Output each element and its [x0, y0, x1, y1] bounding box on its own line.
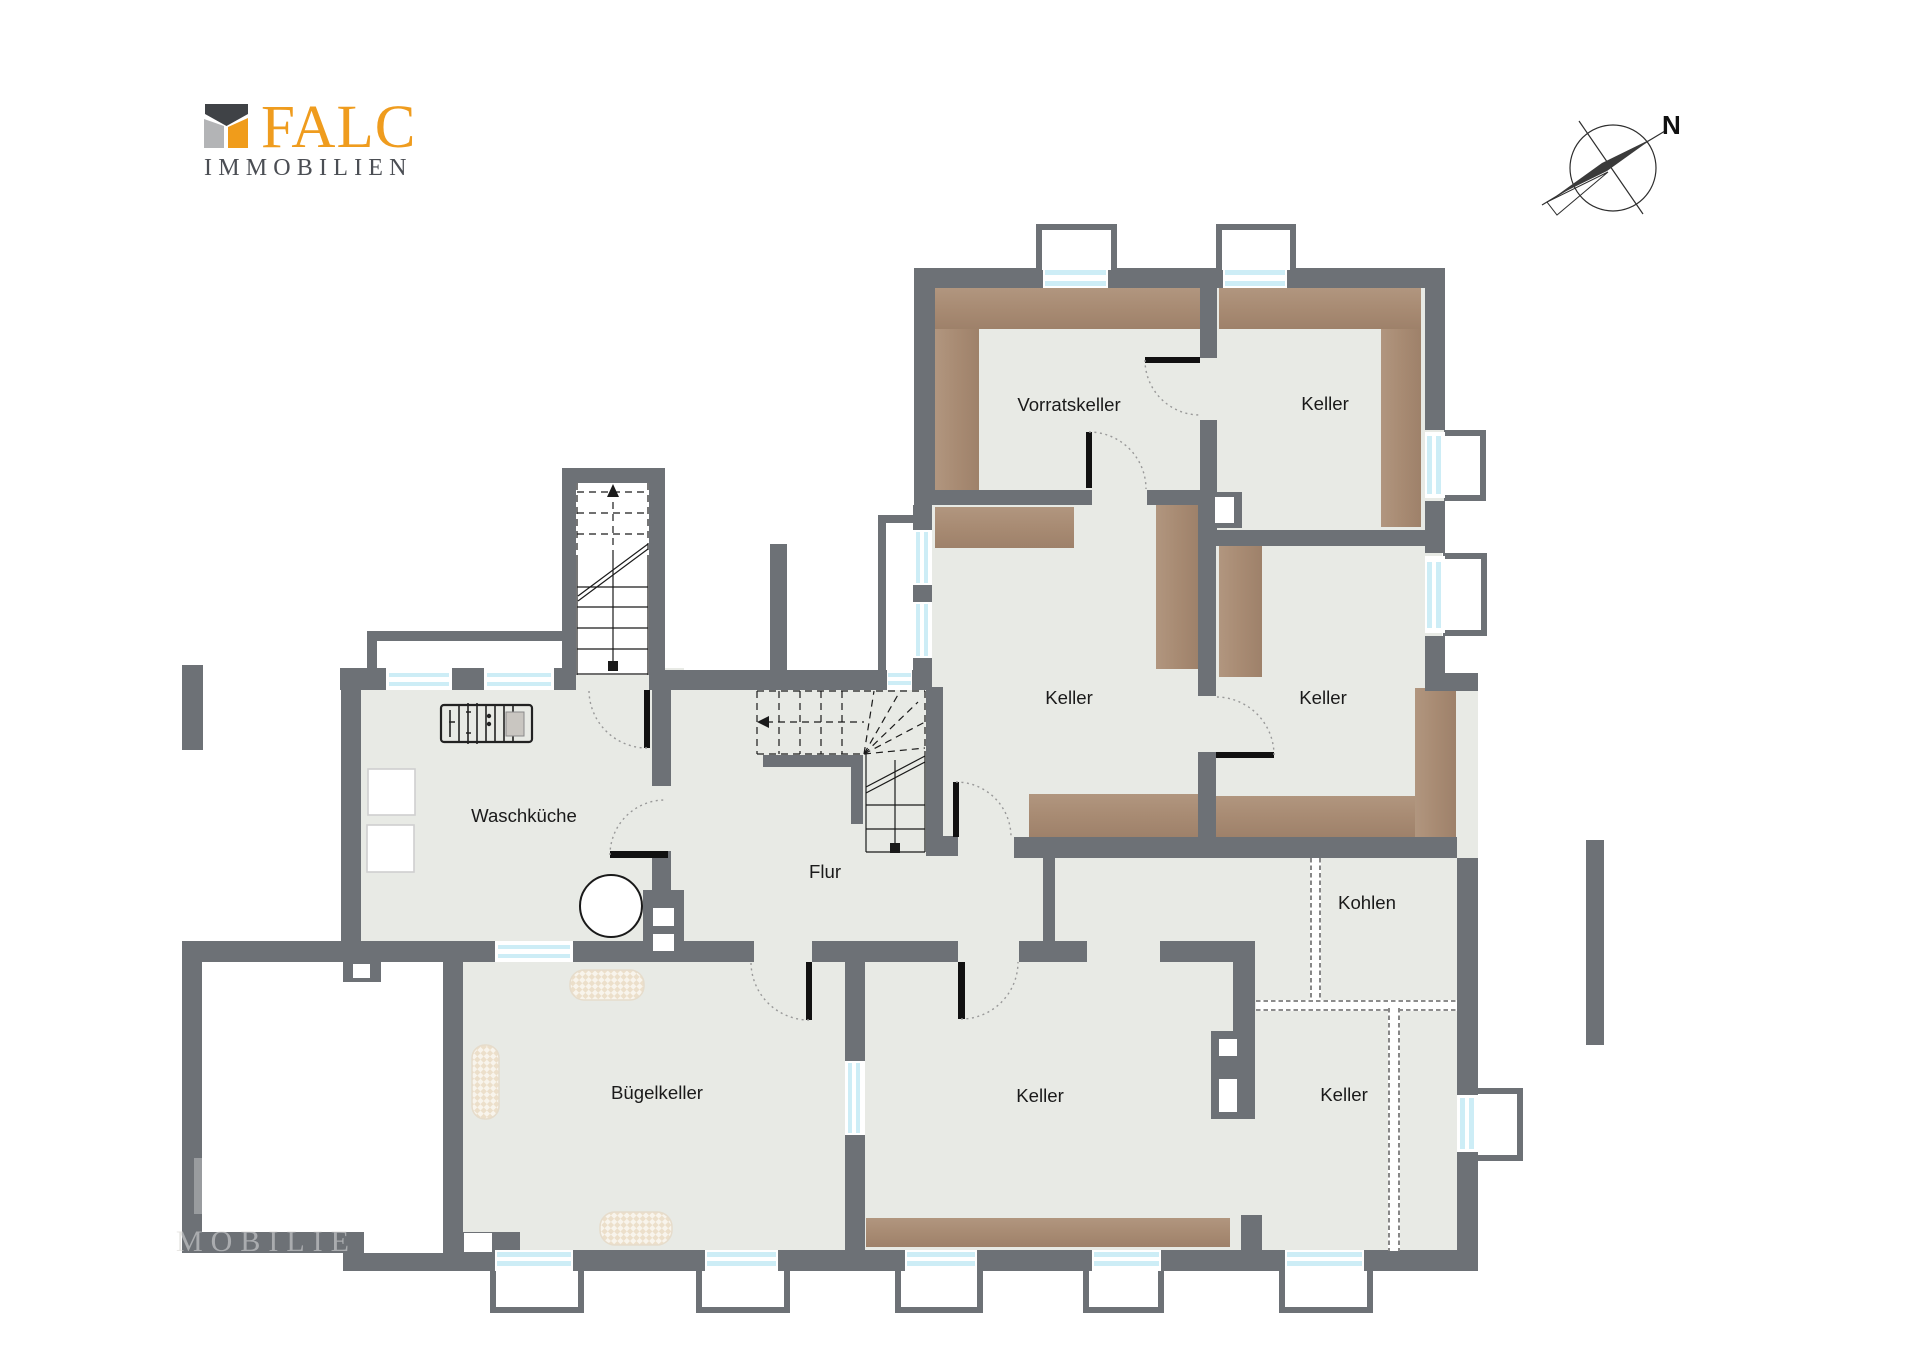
- svg-text:FALC: FALC: [261, 94, 416, 161]
- svg-text:Waschküche: Waschküche: [471, 805, 577, 826]
- svg-text:Keller: Keller: [1299, 687, 1347, 708]
- svg-text:Keller: Keller: [1045, 687, 1093, 708]
- svg-text:MOBILIE: MOBILIE: [176, 1225, 357, 1258]
- svg-text:Keller: Keller: [1016, 1085, 1064, 1106]
- svg-text:Flur: Flur: [809, 861, 841, 882]
- svg-text:N: N: [1662, 110, 1681, 140]
- svg-text:Vorratskeller: Vorratskeller: [1017, 394, 1120, 415]
- svg-text:Keller: Keller: [1301, 393, 1349, 414]
- svg-text:Keller: Keller: [1320, 1084, 1368, 1105]
- svg-text:Kohlen: Kohlen: [1338, 892, 1396, 913]
- svg-text:Bügelkeller: Bügelkeller: [611, 1082, 703, 1103]
- svg-text:IMMOBILIEN: IMMOBILIEN: [204, 155, 413, 181]
